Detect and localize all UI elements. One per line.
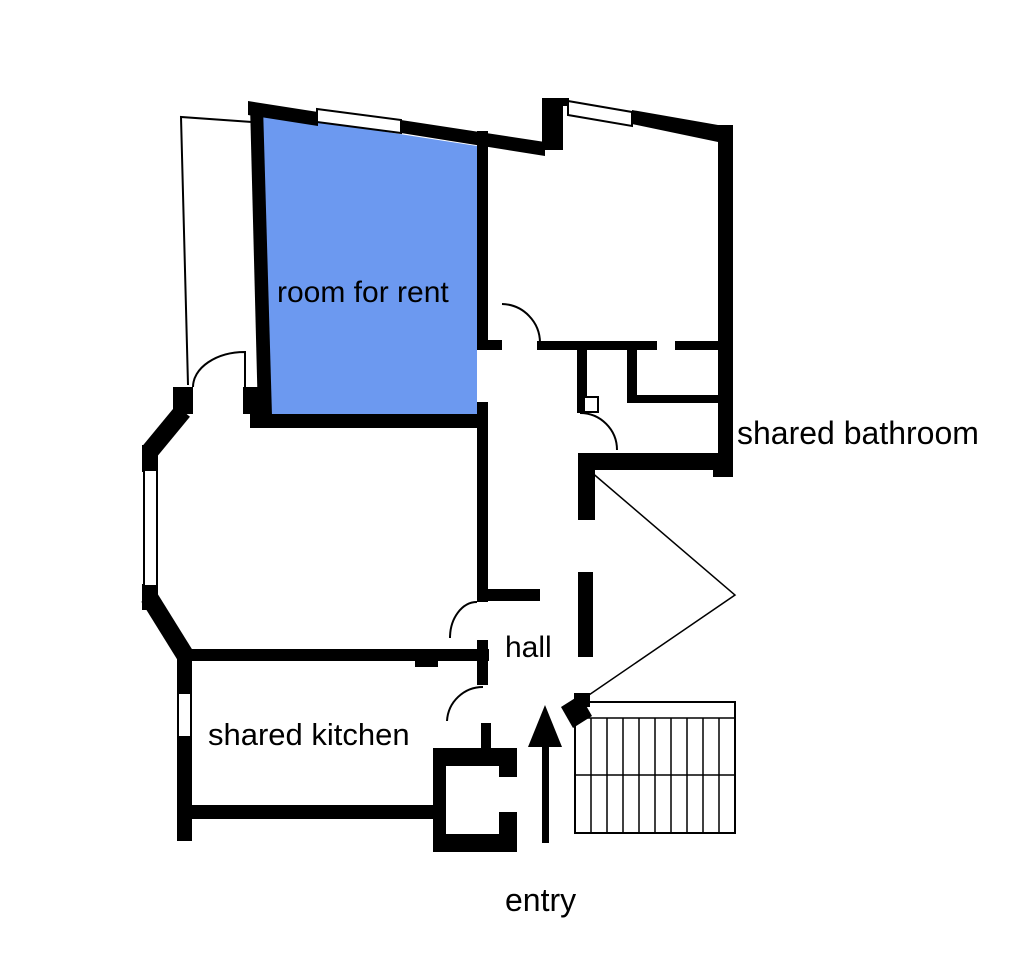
wall-corridor-door-blocks — [173, 387, 267, 414]
staircase — [575, 702, 735, 833]
entry-door — [561, 693, 592, 728]
wall-hall-dashed-segments — [578, 470, 595, 657]
window-bay-left — [144, 470, 157, 586]
label-room-for-rent: room for rent — [277, 276, 449, 309]
wall-room-divider — [477, 131, 488, 345]
window-kitchen-left — [178, 693, 191, 737]
entry-arrow-head — [528, 705, 562, 747]
corridor-thin-walls — [181, 117, 252, 385]
window-right-room-top — [568, 101, 632, 126]
door-arc-bathroom — [580, 413, 617, 450]
wall-bay-upper-angle — [150, 411, 183, 451]
door-arc-kitchen — [447, 687, 483, 721]
wall-kitchen-top — [182, 649, 489, 667]
label-hall: hall — [505, 631, 552, 664]
label-shared-kitchen: shared kitchen — [208, 717, 410, 752]
door-arc-living-room — [450, 602, 477, 638]
door-arc-right-room — [502, 304, 540, 343]
floor-plan-page: room for rent shared bathroom hall share… — [0, 0, 1036, 966]
wall-vestibule-top — [477, 340, 718, 350]
wall-closet-stub — [481, 723, 491, 750]
wall-right-room-top — [632, 110, 718, 142]
wall-entry-closet — [433, 748, 517, 852]
wall-bay-lower-angle — [149, 597, 185, 655]
wall-kitchen-bottom — [185, 805, 433, 819]
wall-right-exterior — [718, 125, 733, 470]
bathroom-sink — [584, 397, 598, 412]
label-shared-bathroom: shared bathroom — [737, 415, 979, 451]
wall-top-connector — [542, 98, 569, 150]
entry-arrow-shaft — [542, 743, 549, 843]
wall-room-bottom — [250, 414, 488, 428]
entry-door-swing-lines — [586, 471, 735, 697]
entry-arrow-icon — [528, 705, 562, 843]
label-entry: entry — [505, 882, 576, 918]
door-arc-corridor — [193, 352, 245, 387]
room-for-rent-area — [258, 112, 477, 420]
wall-bathroom-bottom — [578, 453, 733, 477]
floor-plan-svg: room for rent shared bathroom hall share… — [0, 0, 1036, 966]
